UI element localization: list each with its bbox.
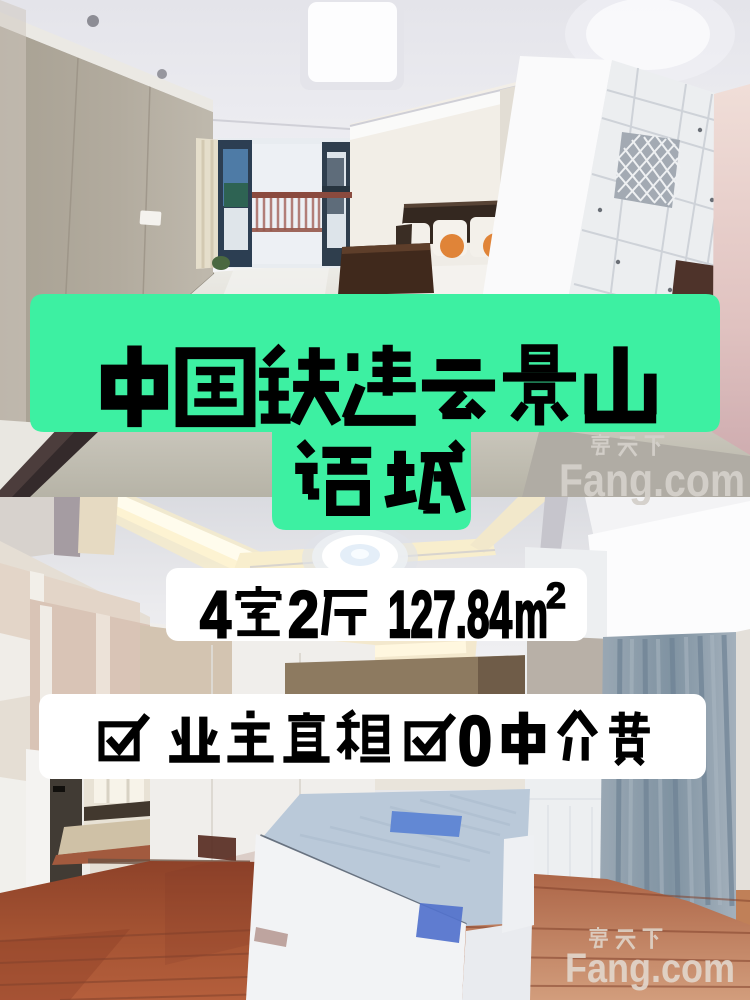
svg-text:127.84: 127.84	[388, 577, 512, 650]
svg-text:Fang.com: Fang.com	[565, 945, 735, 991]
svg-text:2: 2	[546, 575, 566, 616]
svg-text:m: m	[514, 577, 548, 650]
svg-text:2: 2	[288, 577, 319, 650]
svg-text:0: 0	[458, 702, 492, 780]
svg-text:4: 4	[200, 577, 231, 650]
